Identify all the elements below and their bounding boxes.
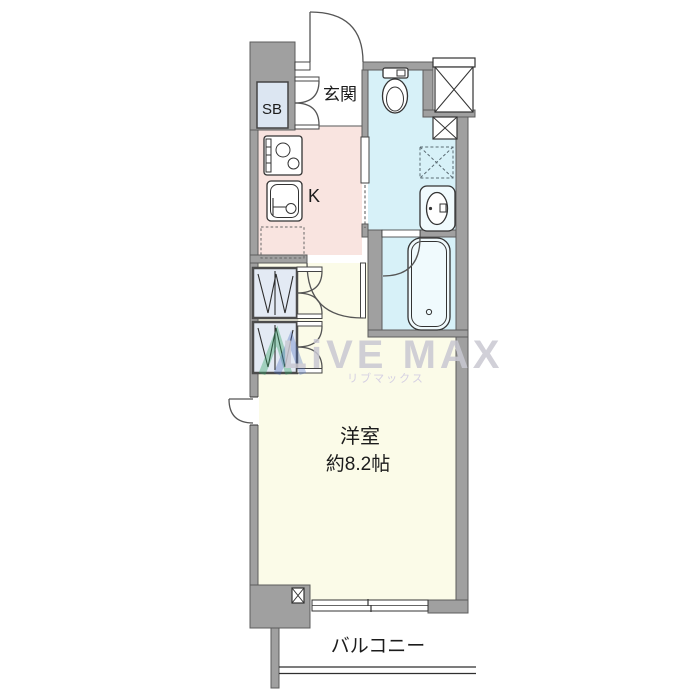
entrance-door-arc — [310, 12, 363, 62]
floorplan-image: LiVE MAX リブマックス 玄関 SB K 洋室 約8.2帖 バルコニー — [0, 0, 700, 700]
sb-door-leaf-bottom — [295, 125, 319, 129]
balcony — [279, 667, 476, 674]
watermark-kana: リブマックス — [347, 371, 425, 385]
wall-mid-upper — [362, 70, 368, 137]
left-window-gap — [249, 397, 259, 425]
label-shoe-box: SB — [262, 101, 282, 118]
vanity-drain — [429, 207, 432, 210]
wall-mid-lower — [362, 224, 368, 237]
closet-lower-door-leaf1 — [297, 322, 322, 327]
closet-upper-door-leaf1 — [297, 267, 322, 272]
wall-balcony-stem — [271, 628, 279, 688]
watermark-text: LiVE MAX — [283, 333, 504, 377]
wall-bathroom-left — [368, 230, 382, 337]
label-room-size: 約8.2帖 — [326, 453, 390, 475]
stove-icon — [264, 136, 302, 175]
shaft-area — [433, 58, 475, 139]
wall-bottom-right — [428, 600, 468, 613]
label-entrance: 玄関 — [323, 85, 357, 104]
wall-kitchen-bottom — [250, 255, 307, 263]
sb-door-leaf-top — [295, 77, 319, 81]
ps-box-bottom — [292, 588, 304, 603]
kitchen-room-door-leaf — [361, 263, 366, 318]
entrance-door-frame — [295, 62, 310, 70]
closet-upper — [253, 268, 297, 318]
label-room-name: 洋室 — [340, 425, 380, 448]
bathroom-doorway — [382, 230, 420, 237]
closet-upper-door-leaf2 — [297, 314, 322, 319]
bathtub-outer — [408, 238, 450, 330]
sink-icon — [267, 181, 302, 221]
corridor-band — [433, 58, 475, 67]
label-kitchen: K — [308, 186, 320, 206]
balcony-window — [312, 599, 428, 612]
floorplan-svg: LiVE MAX リブマックス 玄関 SB K 洋室 約8.2帖 バルコニー — [0, 0, 700, 700]
toilet-icon — [383, 68, 409, 113]
wall-left-lower — [250, 425, 258, 587]
vanity-icon — [420, 186, 455, 231]
bathtub-icon — [408, 238, 450, 330]
label-balcony: バルコニー — [331, 636, 426, 657]
washroom-door-panel — [361, 137, 369, 183]
